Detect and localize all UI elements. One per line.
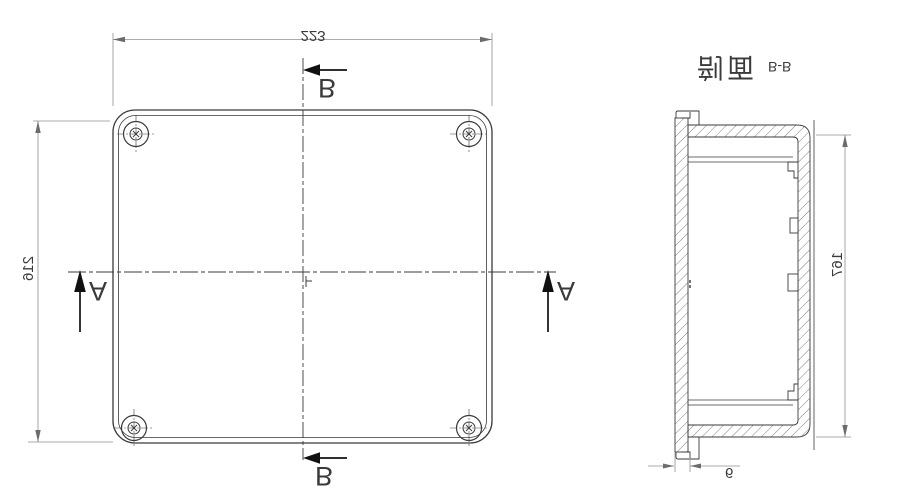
arrowhead-top <box>842 135 847 147</box>
dimension-height-value: 216 <box>20 256 37 281</box>
screw-hole-top-right <box>450 115 488 153</box>
plan-view <box>68 58 556 460</box>
section-bracket-top <box>788 162 798 178</box>
dimension-depth-value: 167 <box>829 252 846 277</box>
section-left-wall <box>675 118 688 452</box>
section-interior-lines-bottom <box>688 400 793 405</box>
arrowhead-left <box>113 37 125 42</box>
section-arrow-b-bottom: B <box>303 452 347 491</box>
screw-hole-bottom-left <box>115 409 153 447</box>
section-view-title: 剖面 B-B <box>697 52 791 82</box>
arrowhead-right <box>480 37 492 42</box>
section-bracket-bottom <box>788 384 798 400</box>
arrowhead-right <box>690 464 701 469</box>
arrowhead-top <box>35 121 40 133</box>
section-view-b-b <box>675 111 814 459</box>
dimension-wall-value: 6 <box>725 464 733 481</box>
arrowhead-bottom <box>842 425 847 437</box>
drawing-canvas: 223 216 B B A A <box>0 0 900 500</box>
dimension-depth: 167 <box>816 135 851 437</box>
screw-hole-top-left <box>117 115 155 153</box>
dimension-wall: 6 <box>648 452 740 481</box>
section-interior-lines-top <box>688 157 793 162</box>
section-arrow-a-right: A <box>542 270 575 332</box>
section-label-b-top: B <box>318 73 336 103</box>
section-label-a-left: A <box>89 276 107 306</box>
section-boss-tab-1 <box>790 218 798 233</box>
section-label-b-bottom: B <box>315 461 333 491</box>
section-arrow-a-left: A <box>74 270 107 332</box>
center-mark <box>306 276 312 287</box>
enclosure-outer-outline <box>113 110 492 443</box>
dimension-width: 223 <box>113 27 492 106</box>
screw-hole-bottom-right <box>450 409 488 447</box>
section-title-text: 剖面 <box>697 52 757 82</box>
arrowhead-left <box>663 464 674 469</box>
section-arrow-b-top: B <box>303 64 347 103</box>
arrowhead-bottom <box>35 430 40 442</box>
engineering-drawing-sheet: 223 216 B B A A <box>0 0 900 500</box>
cut-arrowhead <box>542 270 554 292</box>
section-title-ref: B-B <box>768 59 791 75</box>
section-label-a-right: A <box>557 276 575 306</box>
cut-arrowhead <box>74 270 86 292</box>
enclosure-inner-outline <box>119 116 487 438</box>
section-boss-tab-2 <box>788 274 798 291</box>
dimension-width-value: 223 <box>300 27 325 44</box>
